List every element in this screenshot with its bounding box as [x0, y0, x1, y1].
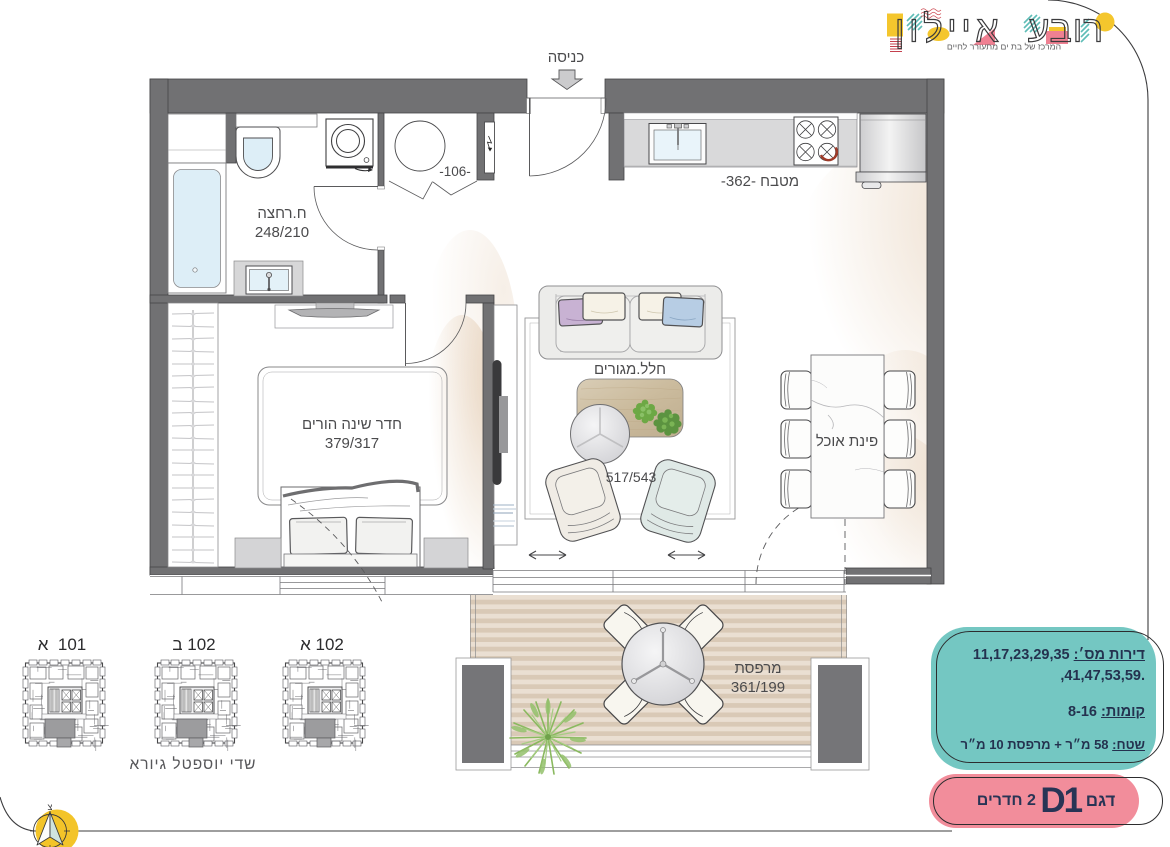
- svg-text:צ: צ: [48, 802, 53, 812]
- svg-text:המרכז של בת ים מתעורר לחיים: המרכז של בת ים מתעורר לחיים: [947, 42, 1061, 52]
